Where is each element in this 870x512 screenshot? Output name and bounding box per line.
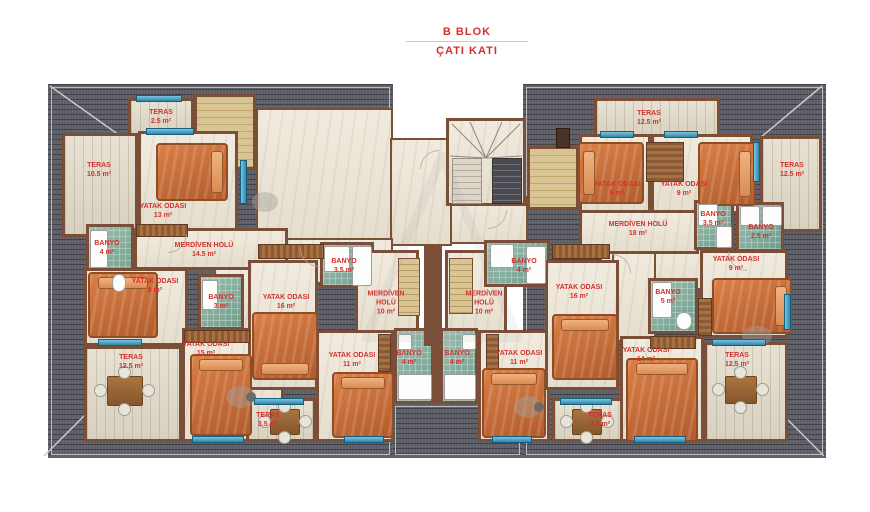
core-hall-west — [390, 138, 452, 246]
toilet — [716, 226, 732, 248]
bath-divider-wall — [432, 330, 442, 404]
window — [784, 294, 791, 330]
wardrobe — [698, 298, 712, 336]
terrace-table-set — [712, 366, 768, 412]
window — [600, 131, 634, 138]
stair-flight-dark — [492, 158, 522, 204]
wardrobe — [552, 244, 610, 259]
floorplan-canvas: B BLOK ÇATI KATI — [0, 0, 870, 512]
window — [753, 142, 760, 182]
radiator — [486, 334, 499, 372]
window — [560, 398, 612, 405]
window — [664, 131, 698, 138]
table — [107, 376, 143, 406]
shower — [324, 246, 350, 272]
block-name: B BLOK — [392, 26, 542, 38]
rug — [252, 192, 278, 212]
window — [146, 128, 194, 135]
chair — [580, 431, 593, 444]
window — [712, 339, 766, 346]
terrace-table-set — [258, 400, 310, 442]
chair — [118, 403, 131, 416]
sink — [398, 334, 412, 350]
stair-flight-light — [452, 158, 482, 204]
chair — [94, 384, 107, 397]
bathtub — [90, 230, 108, 268]
window — [192, 436, 244, 443]
shower — [698, 204, 718, 226]
side-table — [534, 402, 544, 412]
unit-stair-center-left — [398, 258, 420, 316]
chair — [118, 366, 131, 379]
chair — [712, 383, 725, 396]
window — [254, 398, 304, 405]
sink — [462, 334, 476, 350]
staircase-right-unit — [527, 146, 579, 210]
radiator — [378, 334, 391, 372]
toilet — [112, 274, 126, 292]
room-teras-10-5 — [62, 133, 138, 237]
bathtub — [526, 246, 546, 284]
unit-stair-center-right — [449, 258, 473, 314]
window — [634, 436, 686, 443]
toilet — [676, 312, 692, 330]
bed — [552, 314, 618, 380]
chimney-block — [556, 128, 570, 148]
chair — [756, 383, 769, 396]
terrace-table-set — [94, 366, 154, 414]
floor-name: ÇATI KATI — [392, 45, 542, 57]
window — [344, 436, 384, 443]
wardrobe — [650, 336, 696, 349]
chair — [601, 415, 614, 428]
title-divider — [406, 41, 528, 42]
chair — [142, 384, 155, 397]
bathtub — [202, 280, 218, 310]
terrace-table-set — [560, 400, 612, 442]
shower — [740, 206, 760, 226]
window — [98, 339, 142, 346]
bed — [626, 358, 698, 442]
bed — [332, 372, 394, 438]
shower — [762, 206, 782, 226]
chair — [278, 431, 291, 444]
bed — [156, 143, 228, 201]
shower — [490, 244, 514, 268]
chair — [560, 415, 573, 428]
bathtub — [652, 282, 672, 318]
chair — [258, 415, 271, 428]
bed — [252, 312, 318, 380]
window — [492, 436, 532, 443]
open-hall-left — [256, 108, 393, 242]
window — [136, 95, 182, 102]
plan-title: B BLOK ÇATI KATI — [392, 26, 542, 57]
bathtub — [444, 374, 476, 400]
bathtub — [398, 374, 432, 400]
window — [240, 160, 247, 204]
chair — [734, 401, 747, 414]
chair — [734, 366, 747, 379]
bed — [698, 142, 756, 206]
bathtub — [352, 246, 372, 286]
bed — [578, 142, 644, 204]
wardrobe — [646, 142, 684, 182]
table — [725, 376, 757, 404]
wardrobe — [184, 330, 250, 343]
chair — [299, 415, 312, 428]
